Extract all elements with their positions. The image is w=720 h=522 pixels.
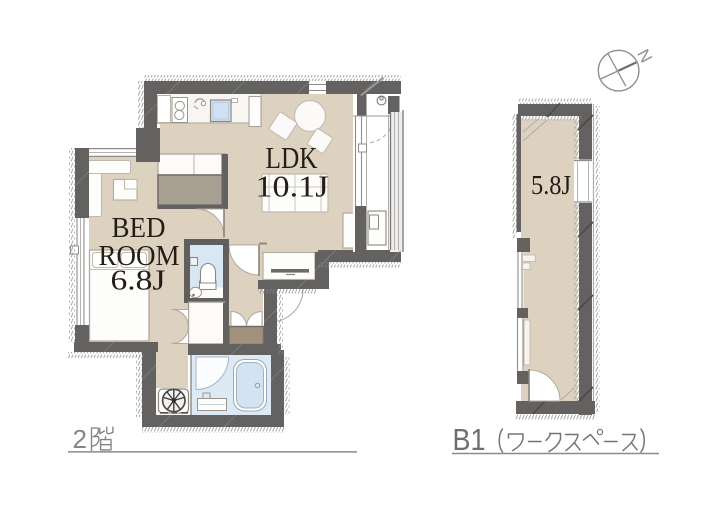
svg-text:10.1J: 10.1J xyxy=(256,169,329,204)
svg-text:5.8J: 5.8J xyxy=(531,170,571,200)
svg-text:B1: B1 xyxy=(453,422,486,457)
svg-text:2: 2 xyxy=(73,424,87,454)
svg-text:6.8J: 6.8J xyxy=(111,265,166,297)
